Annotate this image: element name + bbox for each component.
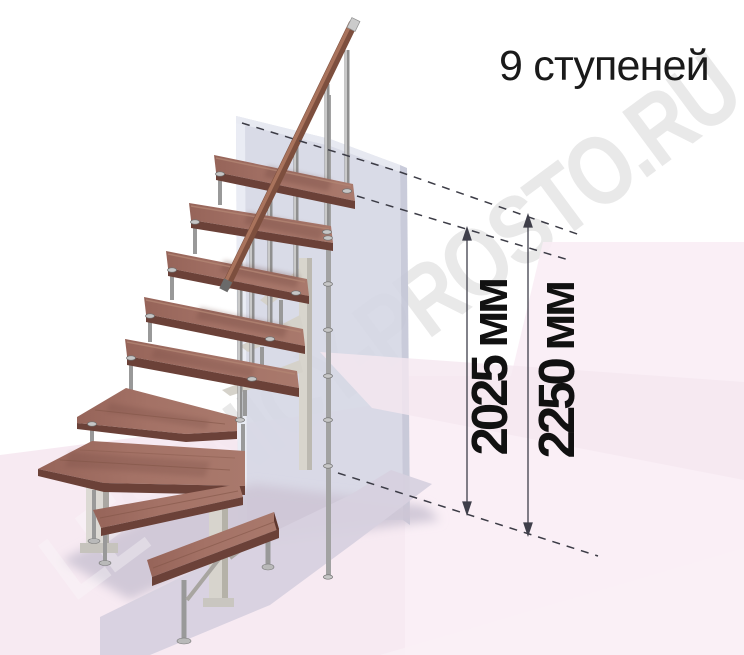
svg-text:2250 мм: 2250 мм xyxy=(528,282,585,458)
svg-text:9 ступеней: 9 ступеней xyxy=(499,42,709,90)
svg-text:2025 мм: 2025 мм xyxy=(461,279,518,455)
